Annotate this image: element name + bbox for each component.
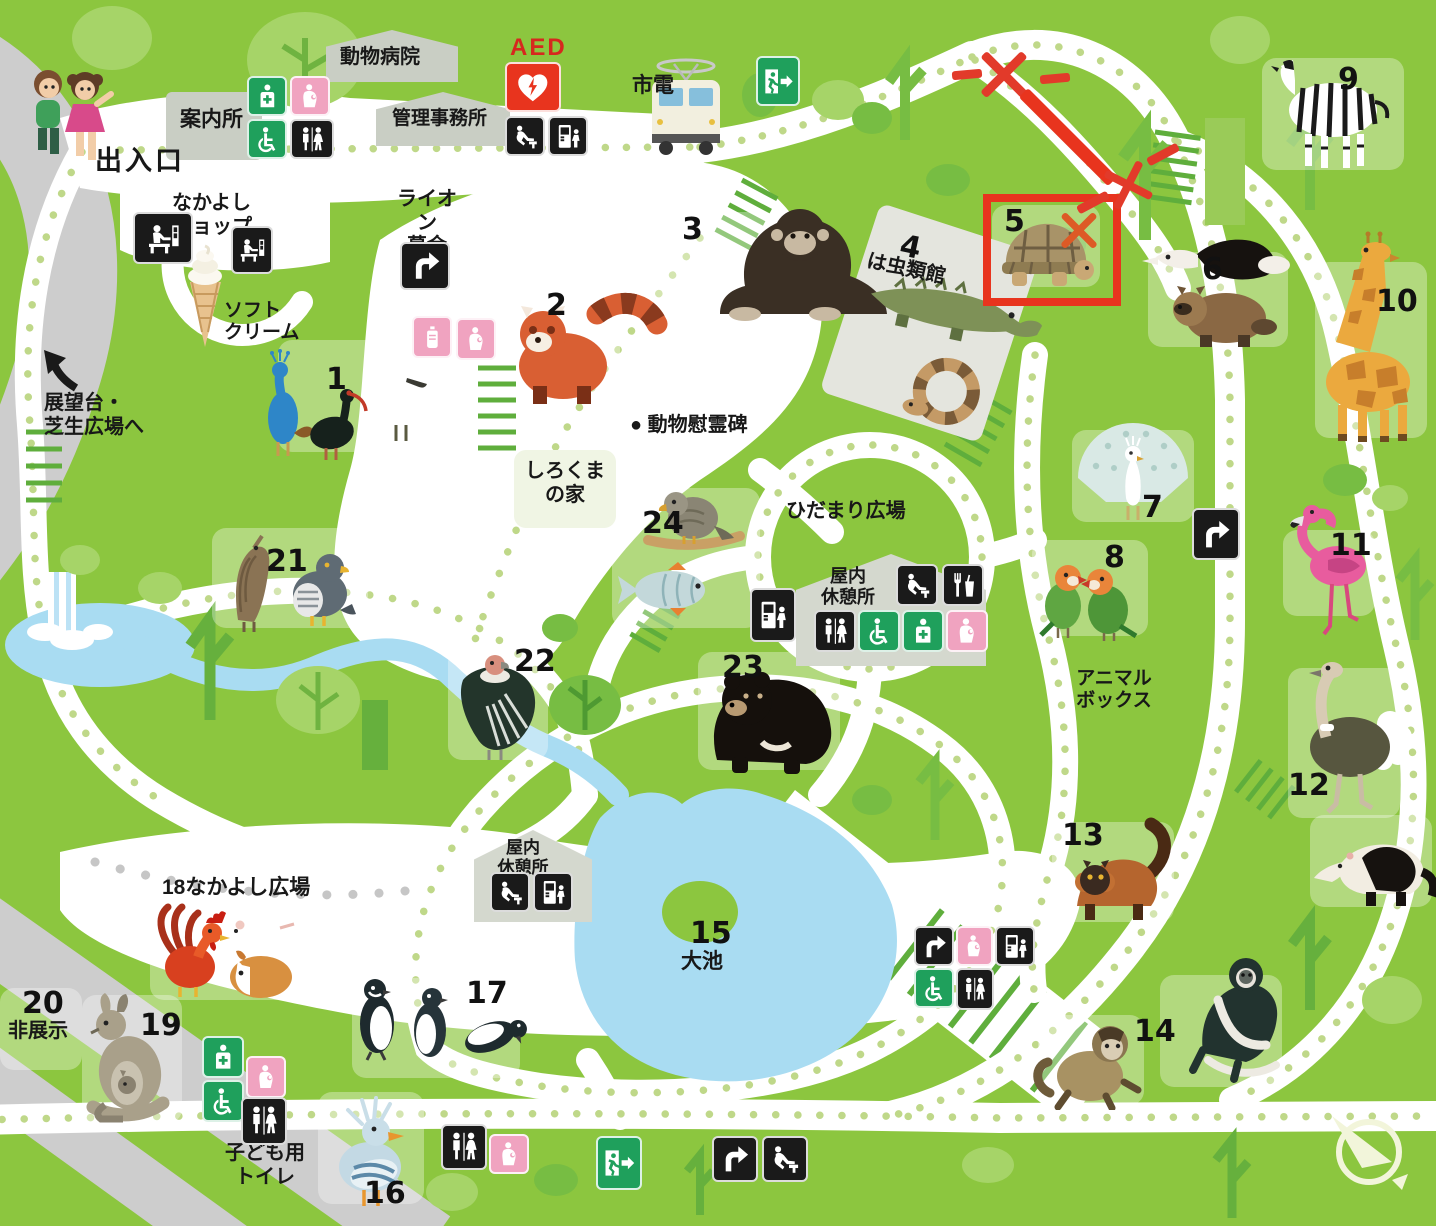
label-entrance: 出入口 xyxy=(95,146,185,178)
food-stand-icon xyxy=(942,564,984,606)
emergency-exit-icon xyxy=(596,1136,642,1190)
wheelchair-accessible-icon xyxy=(914,968,954,1008)
nursing-room-icon xyxy=(456,318,496,360)
marker-23: 23 xyxy=(722,650,764,685)
label-animal-box: アニマル ボックス xyxy=(1066,668,1162,713)
first-aid-icon xyxy=(202,1036,244,1078)
direction-arrow-icon xyxy=(1192,508,1240,560)
drinking-fountain-icon xyxy=(505,116,545,156)
marker-3: 3 xyxy=(682,212,703,247)
vending-machine-icon xyxy=(533,872,573,912)
marker-21: 21 xyxy=(266,544,308,579)
restroom-icon xyxy=(814,610,856,652)
wheelchair-accessible-icon xyxy=(858,610,900,652)
colobus-illustration xyxy=(1158,945,1298,1090)
marker-24: 24 xyxy=(642,506,684,541)
drinking-fountain-icon xyxy=(762,1136,808,1182)
marker-17: 17 xyxy=(466,976,508,1011)
label-polar-bear-house: しろくま の家 xyxy=(516,460,614,507)
marker-2: 2 xyxy=(546,288,567,323)
black-bear-illustration xyxy=(692,642,842,777)
wheelchair-accessible-icon xyxy=(202,1080,244,1122)
aed-icon xyxy=(505,62,561,112)
label-kids-toilet: 子ども用 トイレ xyxy=(222,1142,308,1189)
marker-9: 9 xyxy=(1338,62,1359,97)
label-memorial: ● 動物慰霊碑 xyxy=(630,414,748,438)
emergency-exit-icon xyxy=(756,56,800,106)
zebra-illustration xyxy=(1255,50,1410,172)
marker-20: 20 xyxy=(22,986,64,1021)
nursing-room-icon xyxy=(246,1056,286,1098)
nursing-room-icon xyxy=(946,610,988,652)
kiosk-icon xyxy=(133,212,193,264)
marker-10: 10 xyxy=(1376,284,1418,319)
tamandua-illustration xyxy=(1310,810,1436,910)
direction-arrow-icon xyxy=(914,926,954,966)
tram-illustration xyxy=(642,56,730,158)
road-direction-arrow-icon xyxy=(38,348,86,396)
marker-15: 15 xyxy=(690,916,732,951)
restroom-icon xyxy=(956,968,994,1010)
kiosk-icon xyxy=(231,226,273,274)
direction-arrow-icon xyxy=(400,242,450,290)
label-animal-hospital: 動物病院 xyxy=(340,46,420,70)
label-tram: 市電 xyxy=(632,74,674,99)
direction-arrow-icon xyxy=(712,1136,758,1182)
vending-machine-icon xyxy=(548,116,588,156)
red-panda-illustration xyxy=(505,278,670,408)
white-peacock-illustration xyxy=(1066,406,1200,528)
restroom-icon xyxy=(290,119,334,159)
label-hidamari-plaza: ひだまり広場 xyxy=(786,500,906,524)
hawk-and-carp-illustration xyxy=(608,478,766,628)
marker-7: 7 xyxy=(1142,490,1163,525)
first-aid-icon xyxy=(902,610,944,652)
marker-11: 11 xyxy=(1330,528,1372,563)
label-aed: AED xyxy=(510,34,567,62)
wallaby-illustration xyxy=(75,985,190,1130)
marker-12: 12 xyxy=(1288,768,1330,803)
giraffe-illustration xyxy=(1306,230,1431,442)
compass-north-icon xyxy=(1312,1100,1417,1210)
marker-6: 6 xyxy=(1202,252,1223,287)
first-aid-icon xyxy=(247,76,287,116)
nursing-room-icon xyxy=(489,1134,529,1174)
label-lookout: 展望台・ 芝生広場へ xyxy=(44,392,144,439)
marker-13: 13 xyxy=(1062,818,1104,853)
marker-22: 22 xyxy=(514,644,556,679)
marker-8: 8 xyxy=(1104,540,1125,575)
label-admin-office: 管理事務所 xyxy=(392,108,487,130)
lovebirds-illustration xyxy=(1028,538,1153,643)
wheelchair-accessible-icon xyxy=(247,119,287,159)
marker-16: 16 xyxy=(364,1176,406,1211)
label-information: 案内所 xyxy=(180,108,243,133)
vending-machine-icon xyxy=(995,926,1035,966)
restroom-icon xyxy=(441,1124,487,1170)
marker-14: 14 xyxy=(1134,1014,1176,1049)
nursing-room-icon xyxy=(290,76,330,116)
label-not-exhibit: 非展示 xyxy=(8,1020,68,1044)
label-nakayoshi-plaza: 18なかよし広場 xyxy=(162,876,310,901)
marker-19: 19 xyxy=(140,1008,182,1043)
zoo-guide-map: 出入口 案内所 動物病院 管理事務所 AED 市電 なかよし ショップ ソフト … xyxy=(0,0,1436,1226)
restroom-icon xyxy=(241,1097,287,1145)
waterfall xyxy=(48,572,76,632)
nursing-room-icon xyxy=(956,926,993,966)
capuchin-illustration xyxy=(1028,998,1150,1110)
label-indoor-rest-1: 屋内 休憩所 xyxy=(806,566,890,608)
annotation-x-mark-orange xyxy=(1056,206,1102,252)
vending-machine-icon xyxy=(750,588,796,642)
label-big-pond: 大池 xyxy=(672,950,732,975)
drinking-fountain-icon xyxy=(490,872,530,912)
baby-bottle-icon xyxy=(412,316,452,358)
marker-1: 1 xyxy=(326,362,347,397)
label-soft-cream: ソフト クリーム xyxy=(224,300,299,345)
drinking-fountain-icon xyxy=(896,564,938,606)
